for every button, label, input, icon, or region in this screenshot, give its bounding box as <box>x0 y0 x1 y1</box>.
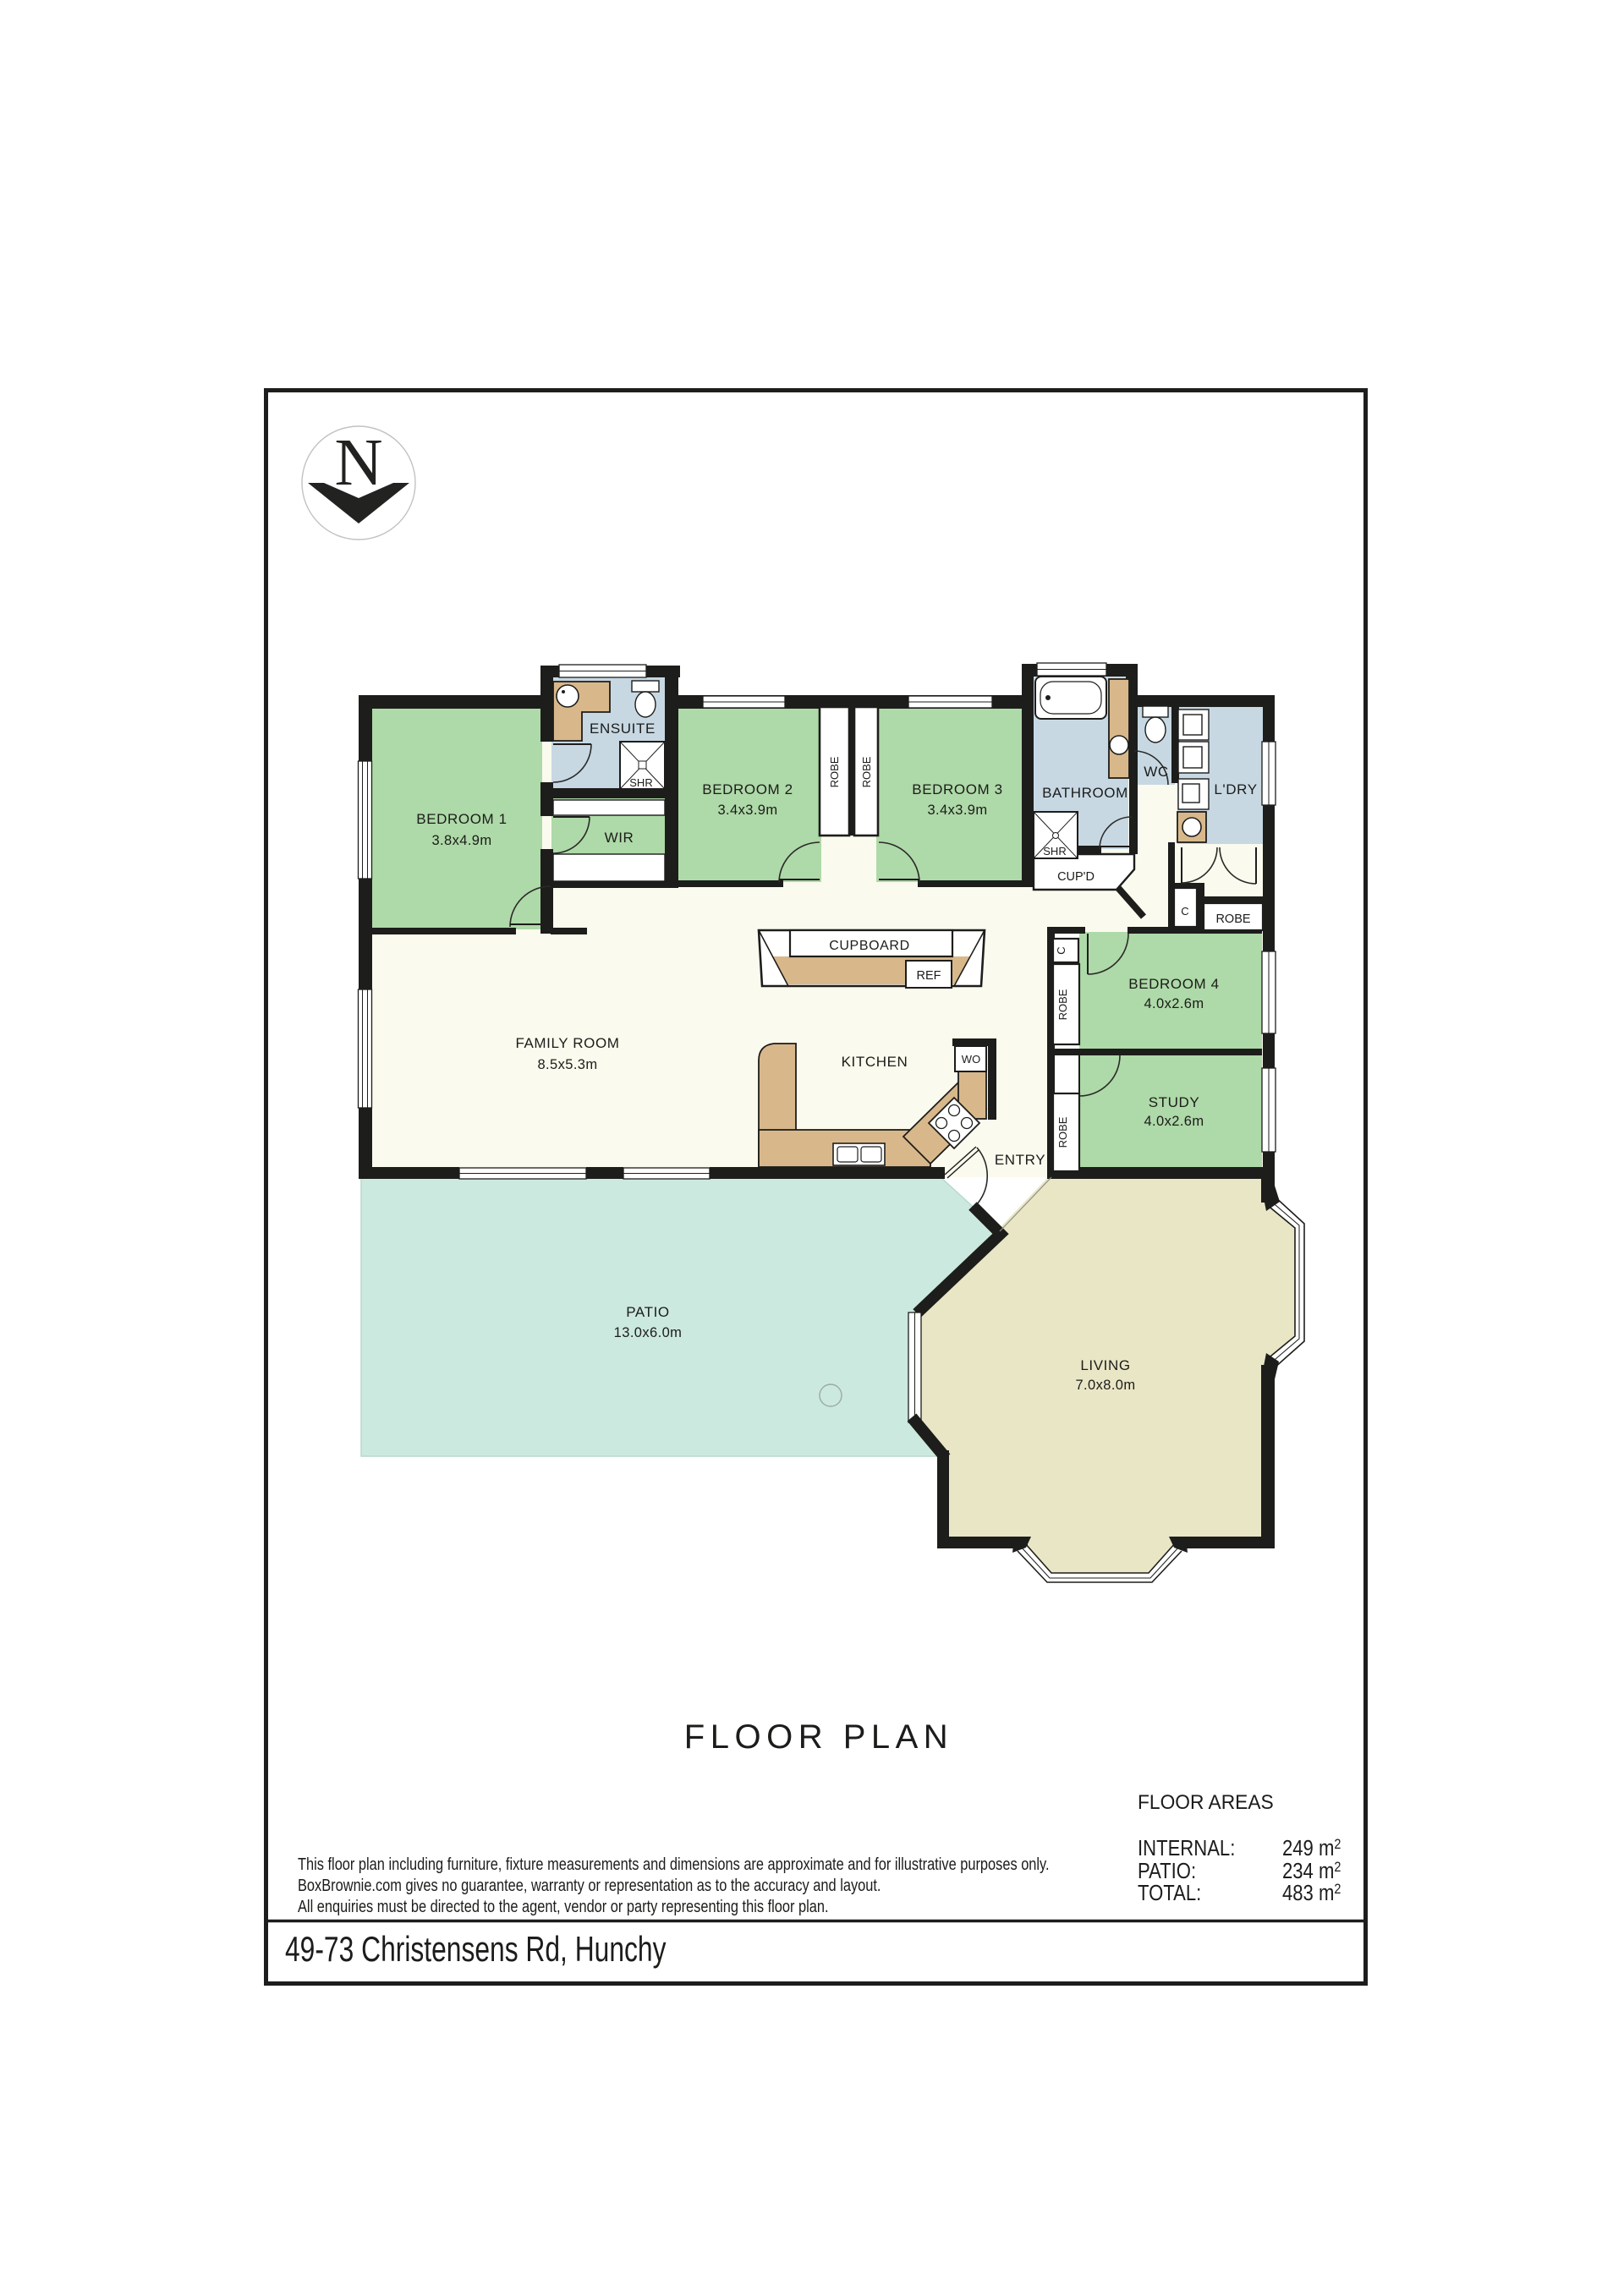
svg-text:49-73 Christensens Rd, Hunchy: 49-73 Christensens Rd, Hunchy <box>285 1929 667 1969</box>
svg-text:SHR: SHR <box>1043 845 1066 858</box>
svg-text:FLOOR PLAN: FLOOR PLAN <box>684 1718 953 1756</box>
svg-text:FLOOR AREAS: FLOOR AREAS <box>1138 1791 1274 1814</box>
svg-text:REF: REF <box>917 969 941 983</box>
svg-text:PATIO:: PATIO: <box>1138 1859 1196 1883</box>
svg-text:3.8x4.9m: 3.8x4.9m <box>431 833 491 848</box>
svg-text:C: C <box>1181 905 1188 918</box>
svg-text:483 m2: 483 m2 <box>1282 1881 1341 1905</box>
svg-text:FAMILY ROOM: FAMILY ROOM <box>515 1035 619 1051</box>
svg-text:4.0x2.6m: 4.0x2.6m <box>1144 1114 1204 1129</box>
svg-text:CUP'D: CUP'D <box>1057 870 1095 884</box>
svg-text:BEDROOM 3: BEDROOM 3 <box>912 781 1002 797</box>
svg-text:ROBE: ROBE <box>860 756 873 787</box>
svg-text:BEDROOM 1: BEDROOM 1 <box>416 811 507 827</box>
svg-text:BoxBrownie.com gives no guaran: BoxBrownie.com gives no guarantee, warra… <box>298 1875 881 1894</box>
svg-text:CUPBOARD: CUPBOARD <box>829 939 909 953</box>
svg-text:7.0x8.0m: 7.0x8.0m <box>1075 1378 1135 1393</box>
svg-text:BEDROOM 4: BEDROOM 4 <box>1128 976 1219 992</box>
svg-text:SHR: SHR <box>629 776 652 789</box>
svg-text:PATIO: PATIO <box>626 1304 670 1320</box>
svg-text:LIVING: LIVING <box>1080 1357 1130 1373</box>
svg-text:C: C <box>1055 946 1067 954</box>
svg-text:All enquiries must be directed: All enquiries must be directed to the ag… <box>298 1896 829 1915</box>
svg-text:L'DRY: L'DRY <box>1214 781 1257 797</box>
svg-text:249 m2: 249 m2 <box>1282 1836 1341 1860</box>
svg-text:BATHROOM: BATHROOM <box>1042 785 1128 801</box>
svg-text:WIR: WIR <box>605 830 634 846</box>
svg-text:ENTRY: ENTRY <box>995 1152 1045 1168</box>
svg-text:STUDY: STUDY <box>1149 1094 1200 1110</box>
svg-text:This floor plan including furn: This floor plan including furniture, fix… <box>298 1854 1050 1873</box>
svg-text:234 m2: 234 m2 <box>1282 1859 1341 1883</box>
svg-text:ROBE: ROBE <box>1056 1116 1069 1148</box>
svg-text:WO: WO <box>962 1053 980 1066</box>
svg-text:4.0x2.6m: 4.0x2.6m <box>1144 996 1204 1011</box>
svg-text:N: N <box>334 426 382 500</box>
svg-text:3.4x3.9m: 3.4x3.9m <box>717 803 777 818</box>
svg-text:ROBE: ROBE <box>1215 912 1250 926</box>
svg-text:BEDROOM 2: BEDROOM 2 <box>702 781 793 797</box>
svg-text:WC: WC <box>1144 764 1169 780</box>
svg-text:INTERNAL:: INTERNAL: <box>1138 1836 1235 1860</box>
svg-text:13.0x6.0m: 13.0x6.0m <box>614 1325 683 1340</box>
svg-text:ROBE: ROBE <box>1056 989 1069 1020</box>
svg-text:ENSUITE: ENSUITE <box>590 721 656 737</box>
svg-text:8.5x5.3m: 8.5x5.3m <box>537 1057 597 1072</box>
svg-text:3.4x3.9m: 3.4x3.9m <box>927 803 987 818</box>
svg-text:KITCHEN: KITCHEN <box>842 1054 908 1070</box>
svg-text:TOTAL:: TOTAL: <box>1138 1881 1201 1905</box>
svg-text:ROBE: ROBE <box>828 756 841 787</box>
